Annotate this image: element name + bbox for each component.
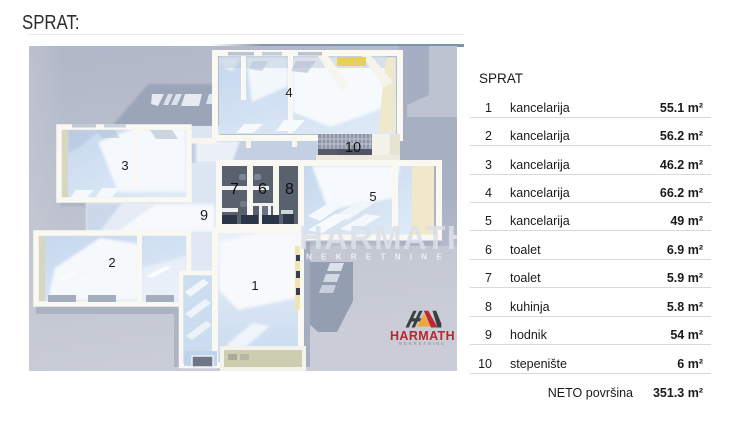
svg-text:10: 10 [345, 140, 361, 156]
svg-text:3: 3 [121, 158, 128, 173]
svg-text:9: 9 [200, 208, 208, 224]
svg-text:HARMATH: HARMATH [299, 219, 457, 256]
svg-text:2: 2 [108, 255, 115, 270]
svg-text:NEKRETNINE: NEKRETNINE [306, 253, 451, 262]
svg-text:6: 6 [258, 181, 267, 198]
svg-text:5: 5 [369, 189, 376, 204]
svg-text:NEKRETNINE: NEKRETNINE [399, 341, 446, 346]
svg-text:7: 7 [230, 181, 239, 198]
svg-text:1: 1 [251, 278, 258, 293]
svg-text:8: 8 [285, 181, 294, 198]
svg-text:4: 4 [285, 85, 292, 100]
